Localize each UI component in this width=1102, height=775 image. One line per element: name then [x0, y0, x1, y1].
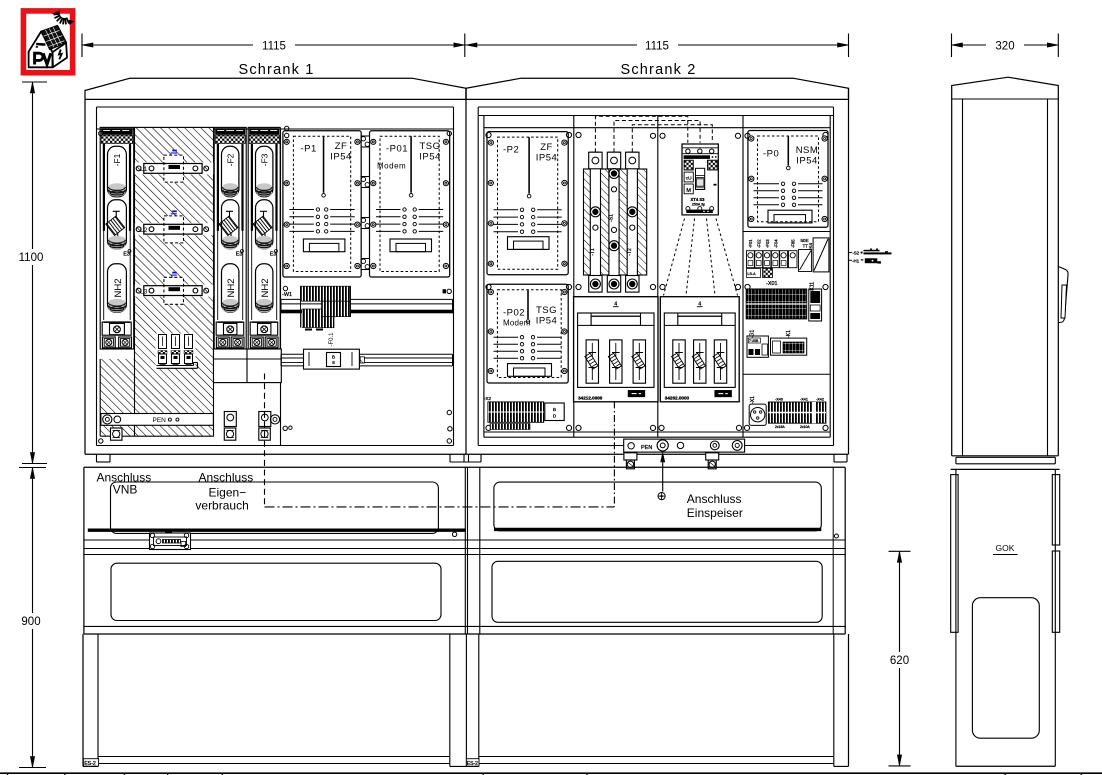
svg-text:verbrauch: verbrauch — [195, 499, 248, 513]
svg-text:IP54: IP54 — [330, 152, 352, 163]
svg-text:-P02: -P02 — [503, 308, 525, 319]
svg-text:PEN: PEN — [153, 417, 167, 424]
svg-text:-X42: -X42 — [816, 398, 824, 402]
svg-text:ES-2: ES-2 — [84, 761, 96, 767]
svg-text:-S1: -S1 — [609, 214, 615, 222]
svg-text:Einspeiser: Einspeiser — [687, 506, 743, 520]
svg-text:50E: 50E — [801, 238, 809, 243]
svg-text:2x10A: 2x10A — [800, 425, 810, 429]
svg-text:250A 3p: 250A 3p — [692, 203, 705, 207]
svg-text:Modem: Modem — [503, 319, 531, 328]
svg-text:1115: 1115 — [262, 40, 286, 52]
svg-text:-F02: -F02 — [757, 239, 762, 248]
svg-text:-K11: -K11 — [810, 282, 816, 292]
svg-text:-X1: -X1 — [750, 396, 756, 404]
svg-text:GOK: GOK — [996, 543, 1015, 553]
svg-text:Modem: Modem — [377, 162, 406, 171]
svg-text:Anschluss: Anschluss — [687, 492, 742, 506]
svg-text:-F3: -F3 — [259, 153, 269, 166]
svg-text:cU: cU — [686, 176, 692, 182]
svg-text:-X40: -X40 — [775, 398, 783, 402]
svg-text:NH2: NH2 — [260, 278, 271, 297]
svg-text:1100: 1100 — [19, 252, 44, 264]
svg-text:IP54: IP54 — [419, 152, 441, 163]
svg-text:Schrank 2: Schrank 2 — [620, 62, 696, 78]
svg-text:-F2: -F2 — [225, 153, 235, 166]
svg-text:-W1: -W1 — [282, 292, 292, 298]
svg-text:-X2: -X2 — [484, 396, 492, 401]
svg-text:L1: L1 — [140, 166, 148, 173]
svg-text:320: 320 — [995, 40, 1014, 52]
svg-text:ZF: ZF — [335, 141, 348, 152]
svg-text:TSG: TSG — [419, 141, 440, 152]
svg-text:-P0: -P0 — [763, 149, 779, 160]
svg-text:2x16A: 2x16A — [775, 425, 785, 429]
svg-text:-X01: -X01 — [766, 281, 778, 287]
svg-text:-K4: -K4 — [808, 243, 813, 251]
svg-text:IP54: IP54 — [536, 316, 558, 327]
svg-text:-P1: -P1 — [301, 144, 317, 155]
svg-text:-H1: -H1 — [852, 258, 860, 263]
svg-text:-F01: -F01 — [748, 239, 753, 248]
svg-text:1115: 1115 — [645, 40, 669, 52]
svg-text:TSG: TSG — [536, 305, 557, 316]
svg-text:-S2: -S2 — [852, 251, 859, 256]
svg-text:-G1: -G1 — [750, 330, 756, 339]
svg-text:-F04: -F04 — [774, 239, 779, 248]
svg-text:-T1: -T1 — [590, 248, 596, 256]
svg-text:Eigen−: Eigen− — [209, 486, 247, 500]
svg-text:XT4 S3: XT4 S3 — [691, 197, 706, 202]
svg-text:34262.0000: 34262.0000 — [665, 395, 690, 400]
svg-text:-T2: -T2 — [627, 248, 633, 256]
svg-text:PEN: PEN — [641, 445, 652, 451]
svg-text:-F1: -F1 — [112, 153, 122, 166]
svg-text:L2: L2 — [140, 227, 148, 234]
svg-text:B: B — [332, 355, 335, 360]
svg-text:LS-A: LS-A — [748, 272, 757, 276]
svg-text:ES-2: ES-2 — [467, 761, 478, 767]
svg-text:NSM: NSM — [796, 145, 819, 156]
svg-text:-F85: -F85 — [791, 239, 796, 248]
svg-text:L3: L3 — [140, 288, 148, 295]
svg-text:B: B — [553, 407, 556, 412]
svg-text:-F03: -F03 — [765, 239, 770, 248]
svg-text:7 USB: 7 USB — [749, 339, 758, 343]
svg-text:-K1: -K1 — [786, 330, 792, 338]
svg-text:NH2: NH2 — [226, 278, 237, 297]
svg-text:900: 900 — [21, 616, 40, 628]
svg-text:IP54: IP54 — [796, 156, 818, 167]
svg-text:-X41: -X41 — [800, 398, 808, 402]
svg-text:VNB: VNB — [113, 483, 138, 497]
svg-text:Schrank 1: Schrank 1 — [238, 62, 314, 78]
svg-text:-F0.1: -F0.1 — [329, 332, 335, 347]
svg-text:NH2: NH2 — [113, 278, 124, 297]
svg-text:34212.0000: 34212.0000 — [578, 395, 603, 400]
svg-text:-P2: -P2 — [503, 145, 519, 156]
svg-text:-P01: -P01 — [386, 144, 408, 155]
svg-text:M: M — [686, 188, 691, 194]
svg-text:IP54: IP54 — [536, 153, 558, 164]
svg-text:ZF: ZF — [540, 142, 553, 153]
svg-text:620: 620 — [890, 655, 909, 667]
